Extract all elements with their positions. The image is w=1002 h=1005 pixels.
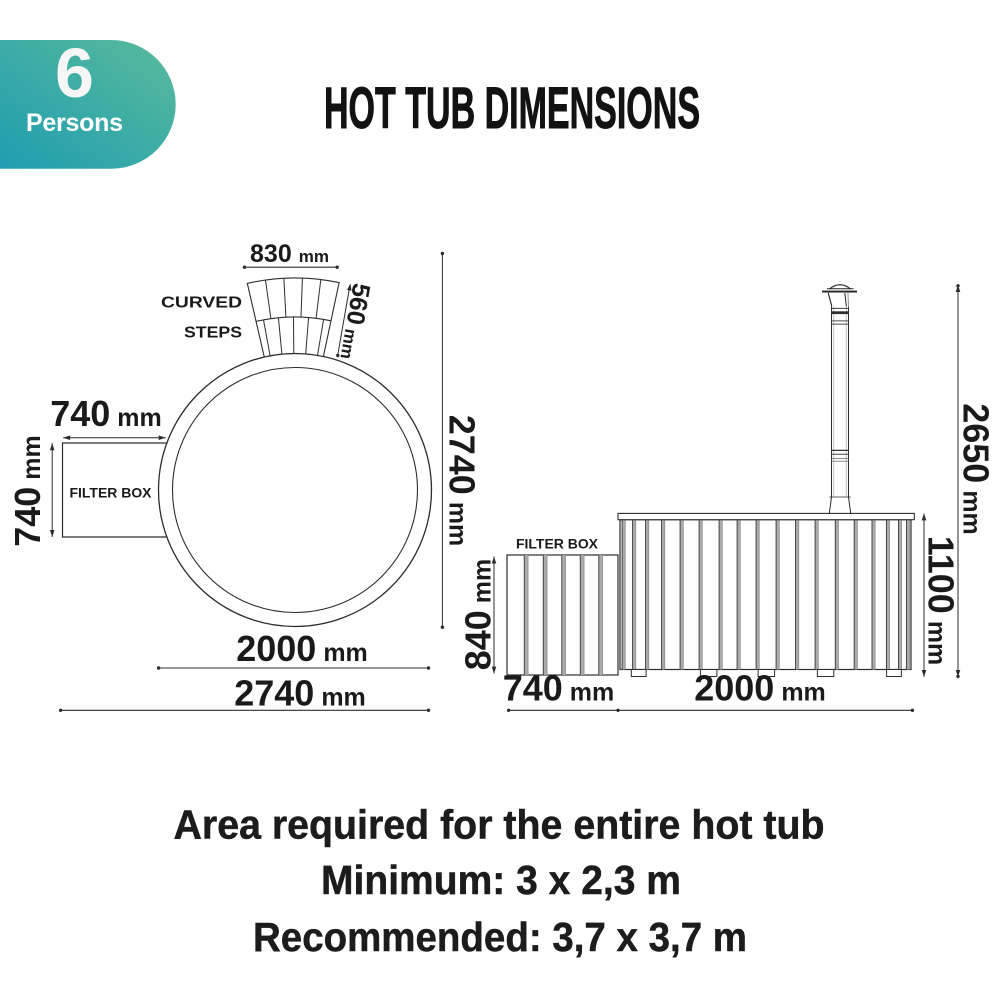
svg-text:740mm: 740mm [50,393,162,434]
svg-text:840mm: 840mm [458,559,499,671]
svg-text:2740mm: 2740mm [234,673,366,714]
svg-text:Minimum: 3 x 2,3 m: Minimum: 3 x 2,3 m [321,857,681,903]
svg-text:STEPS: STEPS [184,325,242,342]
svg-text:2000mm: 2000mm [694,668,826,709]
svg-text:2740mm: 2740mm [442,415,483,547]
svg-text:740mm: 740mm [7,435,48,547]
svg-text:2650mm: 2650mm [956,403,997,535]
svg-text:CURVED: CURVED [161,295,242,312]
svg-text:Persons: Persons [26,109,123,137]
svg-text:830mm: 830mm [250,240,329,268]
svg-text:HOT TUB DIMENSIONS: HOT TUB DIMENSIONS [324,76,700,141]
svg-text:FILTER BOX: FILTER BOX [70,486,152,501]
svg-text:1100mm: 1100mm [921,536,962,666]
svg-text:Area required for the entire h: Area required for the entire hot tub [174,802,825,848]
svg-text:2000mm: 2000mm [236,628,368,669]
svg-text:560mm: 560mm [334,281,375,362]
svg-text:6: 6 [55,34,94,112]
svg-text:Recommended: 3,7 x 3,7 m: Recommended: 3,7 x 3,7 m [253,914,747,960]
svg-text:FILTER BOX: FILTER BOX [516,537,598,552]
